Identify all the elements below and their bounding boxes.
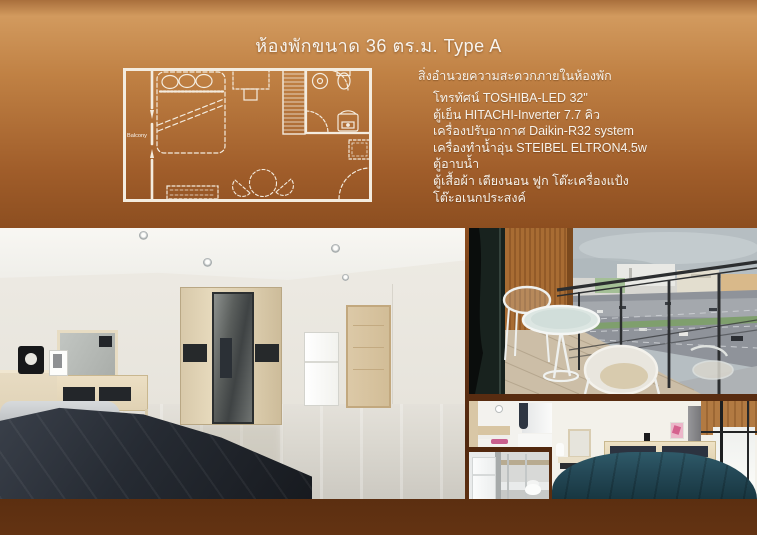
small-room-desk (478, 426, 510, 439)
wardrobe-panel-left (183, 344, 207, 362)
ceiling-spotlight-icon (342, 274, 349, 281)
room-door (346, 305, 391, 408)
photo-bed-teal (552, 401, 757, 499)
plan-tv-cabinet (167, 186, 218, 199)
plan-entry-door (339, 168, 370, 199)
dresser-drawer (63, 387, 95, 401)
wardrobe-mirror (212, 292, 254, 424)
ceiling-spotlight-icon (203, 258, 212, 267)
plan-bathroom (306, 70, 370, 133)
wardrobe (180, 287, 282, 425)
balcony-chair-front (585, 346, 659, 394)
ceiling-spotlight-icon (331, 244, 340, 253)
plan-door-arrow-up (150, 149, 154, 158)
pink-rug (491, 439, 508, 444)
plan-storage (349, 140, 370, 159)
glass-door-dark (469, 228, 505, 394)
plan-water-heater (338, 111, 358, 131)
pink-artwork (670, 422, 684, 439)
plan-stool (244, 89, 257, 100)
wall-corner (392, 284, 393, 404)
plan-table (233, 70, 269, 89)
facility-item-fridge: ตู้เย็น HITACHI-Inverter 7.7 คิว (433, 107, 647, 124)
flyer-canvas: ห้องพักขนาด 36 ตร.ม. Type A Balcony (0, 0, 757, 535)
facility-item-shower: ตู้อาบน้ำ (433, 156, 647, 173)
plan-bed (157, 72, 225, 153)
white-lamp (556, 443, 564, 456)
photo-balcony (469, 228, 757, 394)
photo-bathroom-small (469, 452, 549, 499)
small-room-curtain (519, 403, 528, 429)
refrigerator (304, 332, 339, 406)
balcony-label: Balcony (127, 133, 147, 139)
small-room-bed (518, 434, 552, 447)
facility-item-table: โต๊ะอเนกประสงค์ (433, 190, 647, 207)
plan-dining-set (233, 170, 294, 197)
floor-plan: Balcony (123, 68, 372, 202)
toilet (525, 484, 541, 495)
mantel-clock (18, 346, 44, 374)
photo-frame (49, 350, 68, 376)
facility-item-heater: เครื่องทำน้ำอุ่น STEIBEL ELTRON4.5w (433, 140, 647, 157)
facilities-heading: สิ่งอำนวยความสะดวกภายในห้องพัก (418, 66, 612, 86)
page-title: ห้องพักขนาด 36 ตร.ม. Type A (0, 31, 757, 60)
facility-item-tv: โทรทัศน์ TOSHIBA-LED 32" (433, 90, 647, 107)
photo-room-small (469, 401, 552, 447)
plan-door-arrow-down (150, 110, 154, 119)
refrigerator-small (472, 457, 496, 499)
shower-glass-frame (507, 454, 509, 499)
facility-item-furniture: ตู้เสื้อผ้า เตียงนอน ฟูก โต๊ะเครื่องแป้ง (433, 173, 647, 190)
ceiling-spotlight-icon (495, 405, 503, 413)
teal-room-mirror (568, 429, 591, 458)
small-clock (644, 433, 650, 441)
small-room-wardrobe (469, 401, 478, 447)
wardrobe-panel-right (255, 344, 279, 362)
plan-wardrobe (283, 70, 305, 134)
facilities-list: โทรทัศน์ TOSHIBA-LED 32" ตู้เย็น HITACHI… (433, 90, 647, 206)
photo-main-bedroom (0, 228, 465, 499)
facility-item-aircon: เครื่องปรับอากาศ Daikin-R32 system (433, 123, 647, 140)
window-frame (701, 431, 757, 433)
dresser-drawer (99, 387, 131, 401)
ceiling-spotlight-icon (139, 231, 148, 240)
